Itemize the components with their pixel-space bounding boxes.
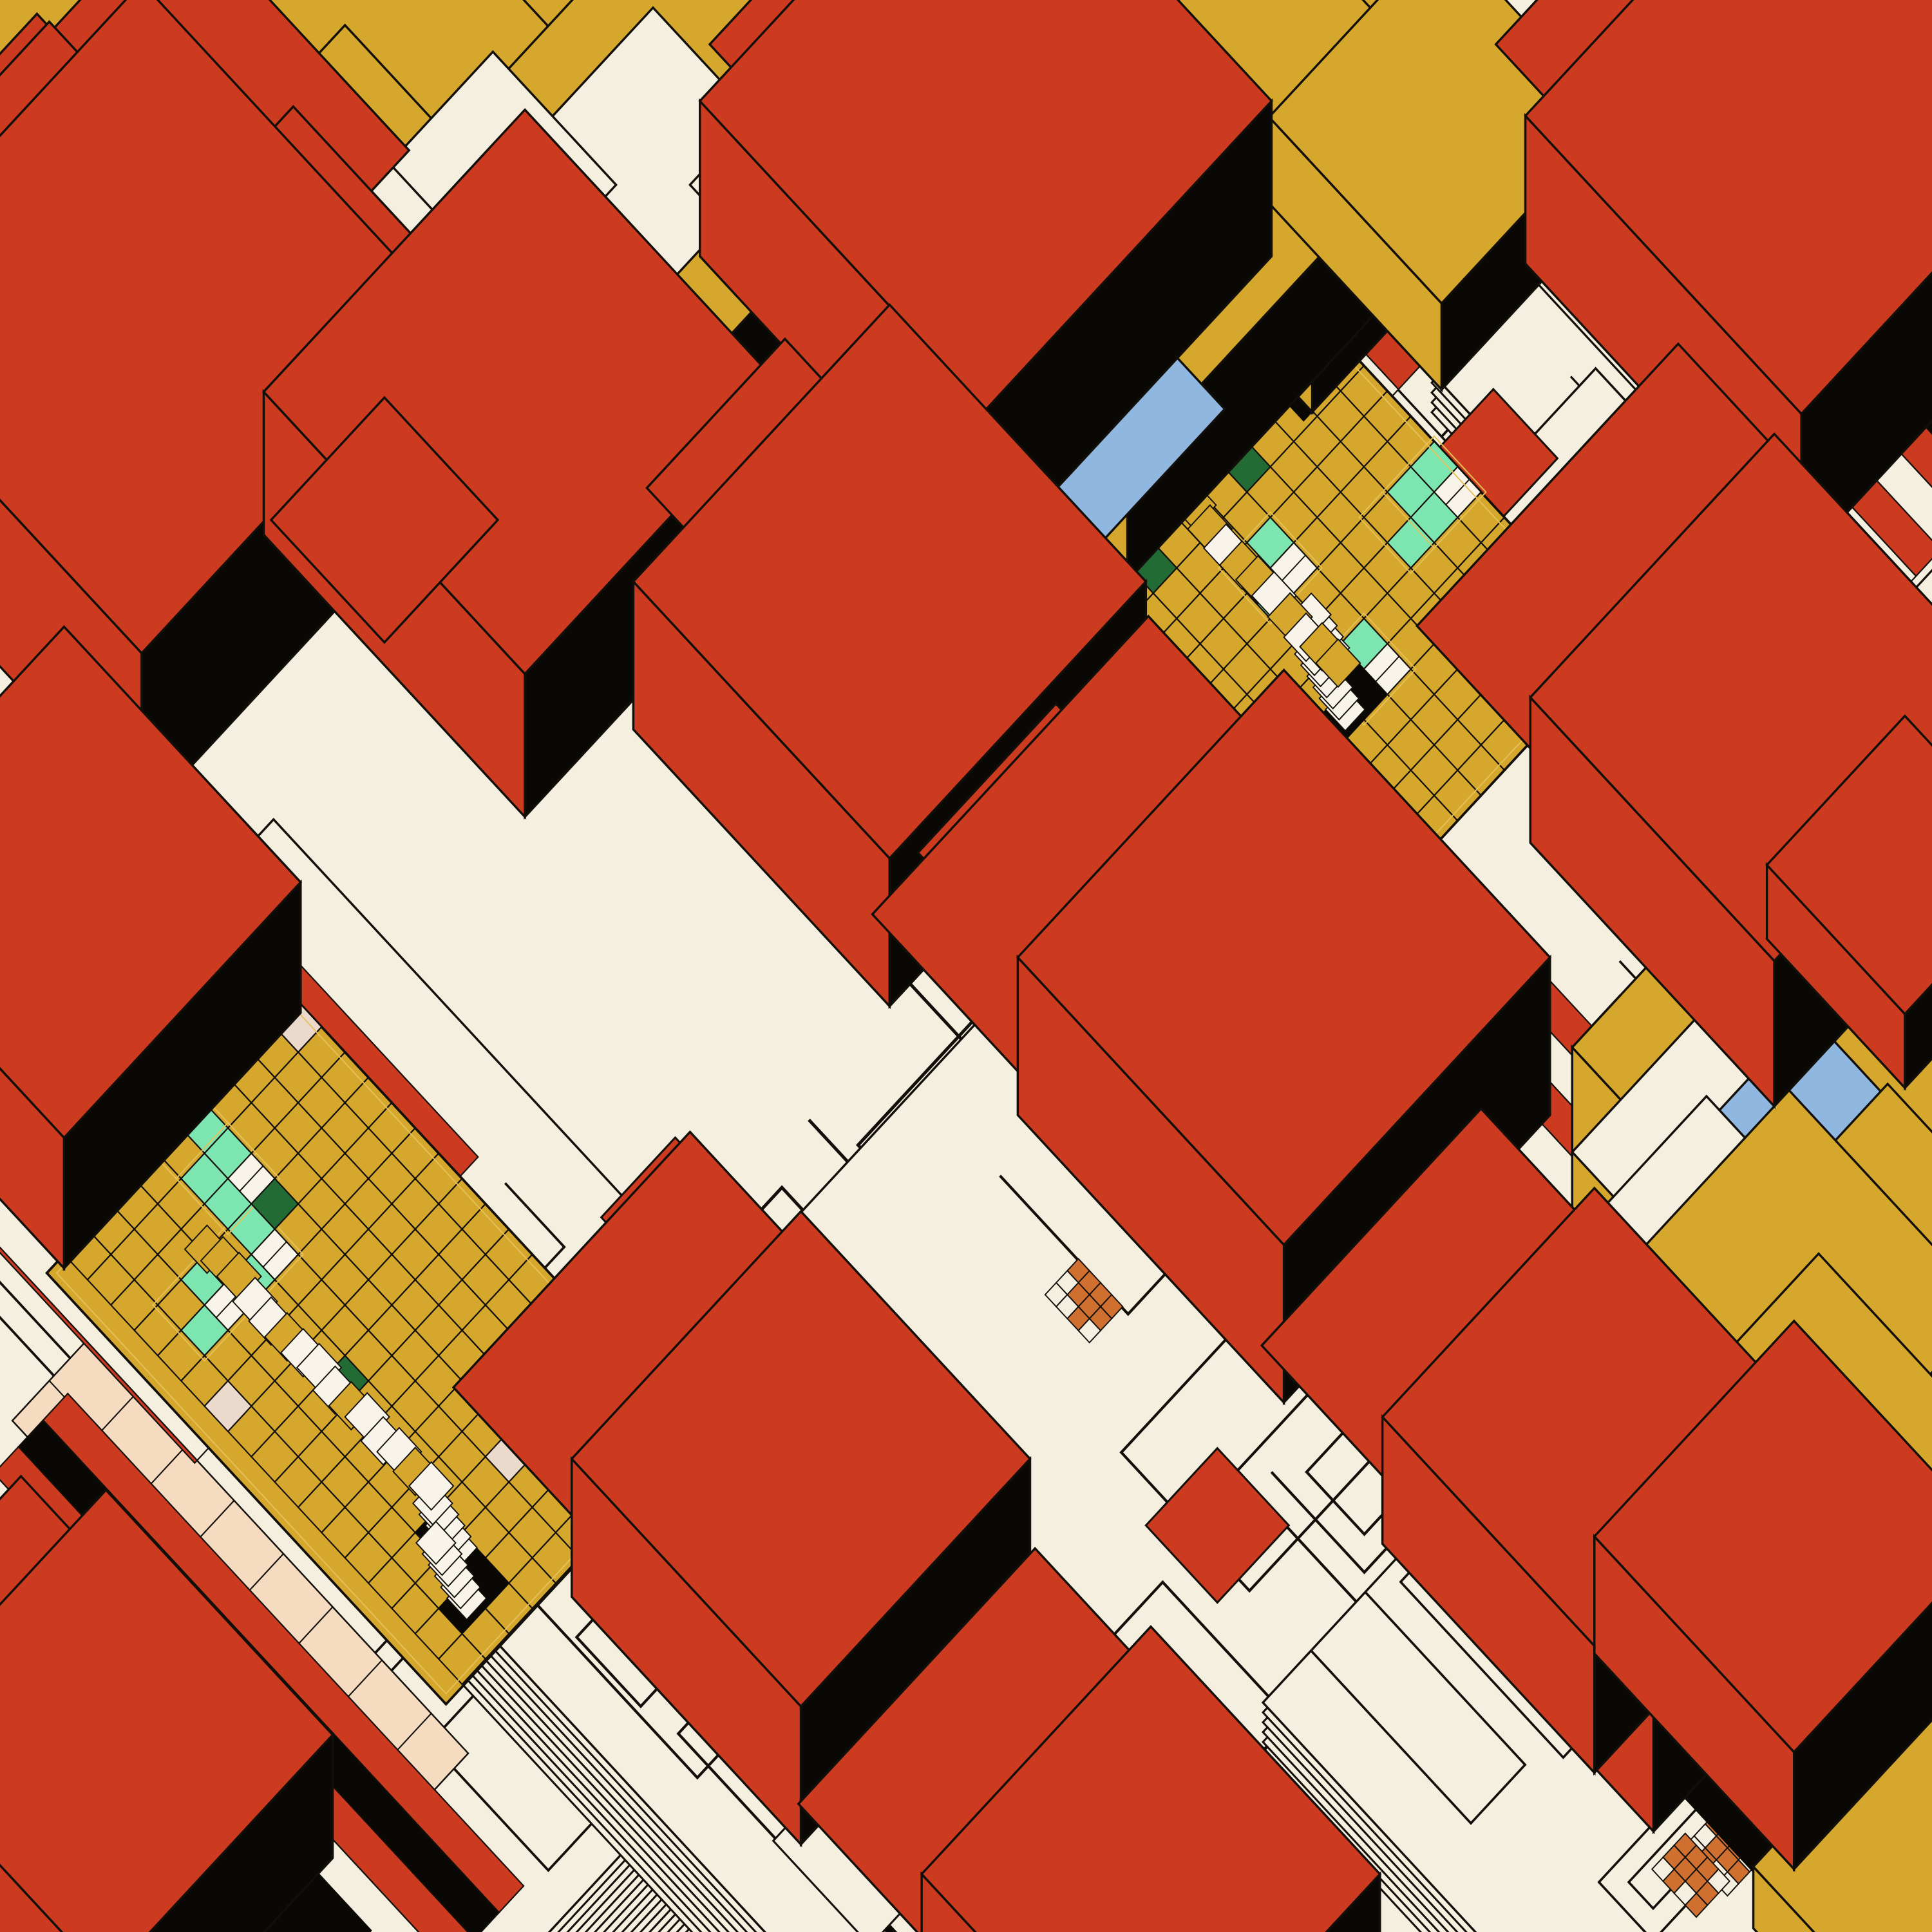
generative-artwork — [0, 0, 1932, 1932]
artwork-canvas — [0, 0, 1932, 1932]
